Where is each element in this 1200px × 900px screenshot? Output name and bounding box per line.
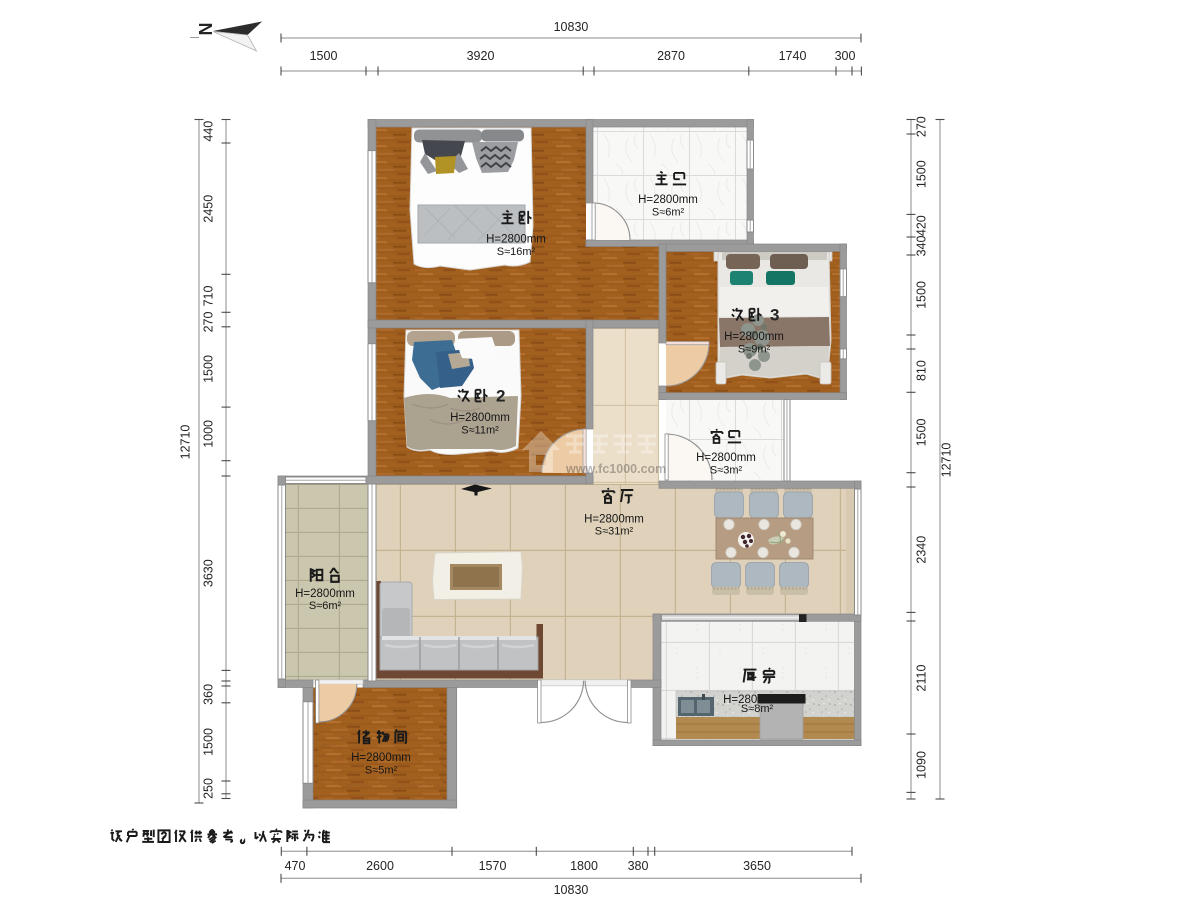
svg-text:H=2800mm: H=2800mm	[351, 752, 411, 764]
svg-text:12710: 12710	[940, 443, 954, 478]
svg-text:420: 420	[915, 215, 929, 236]
svg-text:2600: 2600	[366, 859, 394, 873]
svg-text:270: 270	[915, 116, 929, 137]
svg-text:H=2800mm: H=2800mm	[696, 452, 756, 464]
svg-text:2340: 2340	[915, 536, 929, 564]
svg-text:2: 2	[496, 387, 505, 406]
svg-text:N: N	[195, 23, 215, 36]
svg-text:S≈5m²: S≈5m²	[365, 765, 398, 777]
svg-text:1740: 1740	[779, 49, 807, 63]
svg-text:S≈9m²: S≈9m²	[738, 344, 771, 356]
svg-text:3650: 3650	[743, 859, 771, 873]
svg-text:360: 360	[202, 684, 216, 705]
svg-text:1500: 1500	[202, 728, 216, 756]
svg-text:www.fc1000.com: www.fc1000.com	[565, 462, 666, 476]
svg-text:380: 380	[628, 859, 649, 873]
svg-text:2870: 2870	[657, 49, 685, 63]
svg-text:1500: 1500	[915, 160, 929, 188]
svg-text:10830: 10830	[554, 883, 589, 897]
svg-text:1500: 1500	[915, 419, 929, 447]
svg-text:340: 340	[915, 236, 929, 257]
svg-text:1500: 1500	[915, 281, 929, 309]
svg-text:3: 3	[770, 306, 779, 325]
svg-text:3630: 3630	[202, 559, 216, 587]
svg-text:1500: 1500	[202, 355, 216, 383]
svg-text:H=2800mm: H=2800mm	[295, 588, 355, 600]
svg-text:H=2800mm: H=2800mm	[584, 514, 644, 526]
svg-text:12710: 12710	[179, 425, 193, 460]
svg-text:270: 270	[202, 312, 216, 333]
svg-text:H=2800mm: H=2800mm	[486, 234, 546, 246]
svg-text:S≈3m²: S≈3m²	[710, 465, 743, 477]
svg-text:S≈16m²: S≈16m²	[497, 246, 536, 258]
svg-text:S≈31m²: S≈31m²	[595, 526, 634, 538]
svg-text:H=2800mm: H=2800mm	[450, 412, 510, 424]
svg-text:S≈6m²: S≈6m²	[309, 600, 342, 612]
svg-text:1800: 1800	[570, 859, 598, 873]
svg-text:1090: 1090	[915, 751, 929, 779]
svg-text:2450: 2450	[202, 195, 216, 223]
svg-text:1000: 1000	[202, 420, 216, 448]
svg-text:470: 470	[285, 859, 306, 873]
svg-text:1500: 1500	[310, 49, 338, 63]
svg-text:S≈6m²: S≈6m²	[652, 207, 685, 219]
svg-text:10830: 10830	[554, 20, 589, 34]
svg-text:440: 440	[202, 121, 216, 142]
svg-text:250: 250	[202, 778, 216, 799]
svg-text:H=2800mm: H=2800mm	[638, 194, 698, 206]
svg-text:2110: 2110	[915, 665, 929, 692]
svg-text:H=2800mm: H=2800mm	[724, 331, 784, 343]
svg-text:810: 810	[915, 360, 929, 381]
svg-text:3920: 3920	[467, 49, 495, 63]
svg-text:300: 300	[835, 49, 856, 63]
svg-text:1570: 1570	[479, 859, 507, 873]
svg-text:S≈11m²: S≈11m²	[461, 425, 499, 437]
svg-text:S≈8m²: S≈8m²	[741, 703, 774, 715]
svg-text:710: 710	[202, 286, 216, 307]
